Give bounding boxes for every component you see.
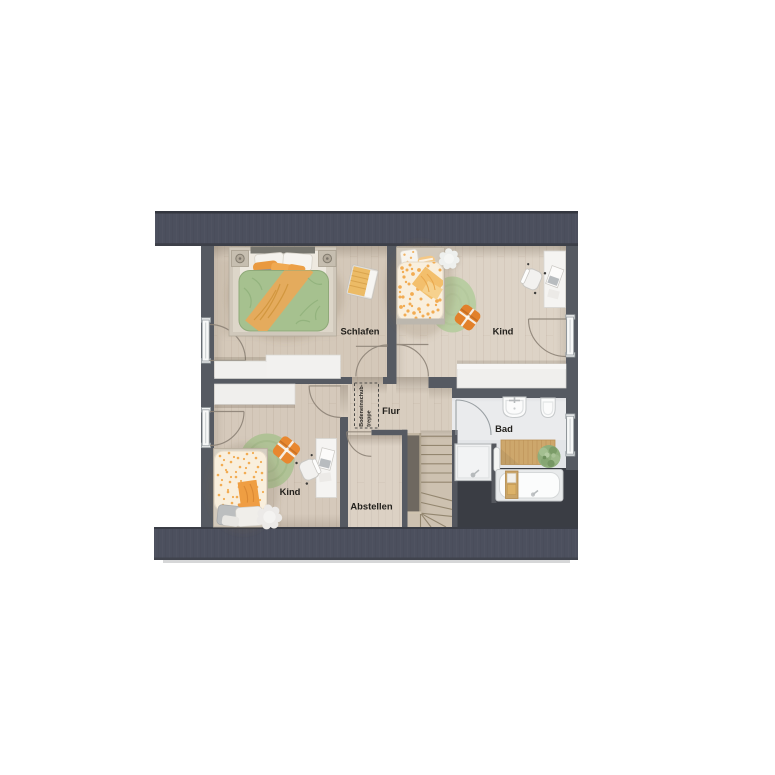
svg-text:Bad: Bad xyxy=(495,423,513,434)
svg-text:Flur: Flur xyxy=(382,405,400,416)
svg-text:Kind: Kind xyxy=(493,326,514,337)
svg-text:Schlafen: Schlafen xyxy=(340,326,379,337)
svg-text:Kind: Kind xyxy=(280,486,301,497)
svg-text:treppe: treppe xyxy=(367,410,373,426)
svg-text:Bodeneinschub-: Bodeneinschub- xyxy=(359,384,365,426)
svg-text:Abstellen: Abstellen xyxy=(350,501,392,512)
